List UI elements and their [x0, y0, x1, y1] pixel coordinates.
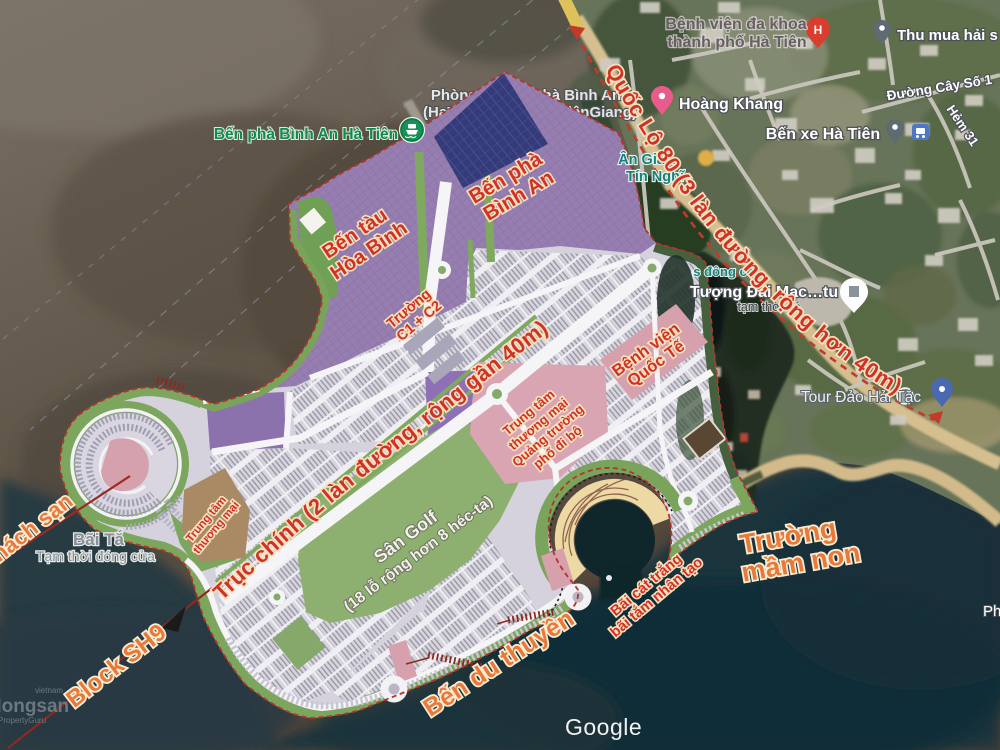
svg-text:PropertyGuru: PropertyGuru — [0, 716, 46, 725]
svg-text:Google: Google — [565, 714, 642, 740]
svg-text:thành phố Hà Tiên: thành phố Hà Tiên — [667, 34, 806, 51]
svg-text:H: H — [814, 23, 823, 37]
svg-text:Thu mua hải s: Thu mua hải s — [897, 27, 998, 44]
svg-text:Ph: Ph — [983, 603, 1000, 620]
svg-text:Bến phà Bình An Hà Tiên: Bến phà Bình An Hà Tiên — [214, 126, 398, 143]
svg-text:Bãi Tắ: Bãi Tắ — [73, 530, 125, 549]
svg-text:Hoàng Khang: Hoàng Khang — [679, 96, 783, 113]
svg-text:Bệnh viện đa khoa: Bệnh viện đa khoa — [665, 16, 806, 33]
svg-text:vietnam: vietnam — [35, 686, 63, 695]
svg-text:Tạm thời đóng cửa: Tạm thời đóng cửa — [36, 548, 155, 564]
svg-text:dongsan: dongsan — [0, 696, 69, 717]
svg-text:Bến xe Hà Tiên: Bến xe Hà Tiên — [766, 126, 880, 143]
svg-text:Tour Đảo Hải Tặc: Tour Đảo Hải Tặc — [801, 389, 922, 406]
